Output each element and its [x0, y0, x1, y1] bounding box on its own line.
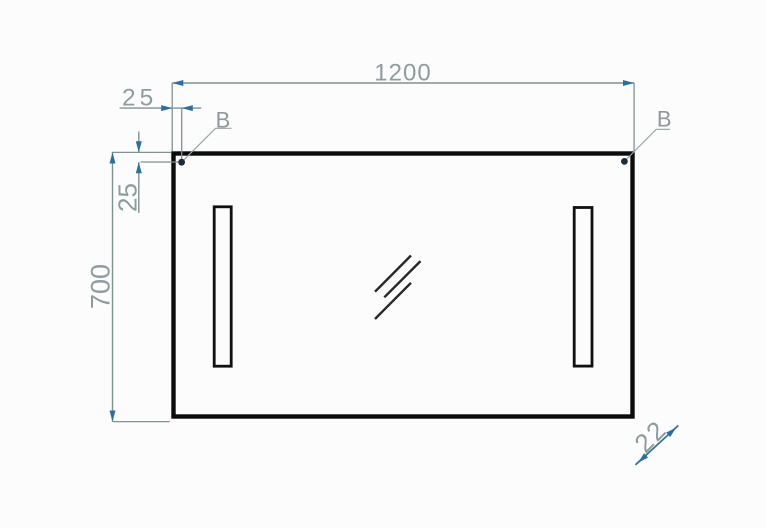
svg-text:25: 25	[122, 85, 157, 112]
svg-text:25: 25	[112, 183, 142, 212]
svg-text:700: 700	[86, 264, 116, 309]
svg-text:B: B	[216, 107, 231, 132]
svg-text:1200: 1200	[374, 60, 431, 87]
svg-text:22: 22	[628, 414, 672, 458]
svg-text:B: B	[657, 107, 672, 132]
